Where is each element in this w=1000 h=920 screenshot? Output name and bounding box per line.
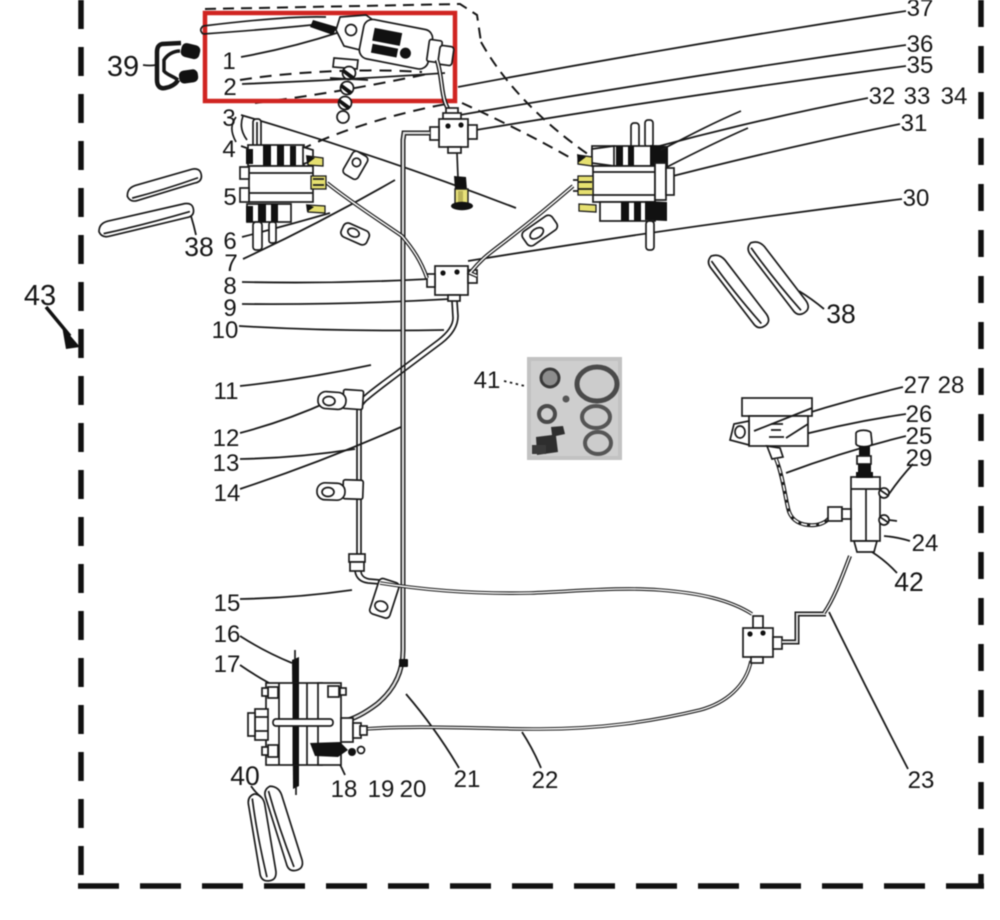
svg-text:19: 19 xyxy=(368,776,395,803)
svg-text:12: 12 xyxy=(213,425,240,452)
svg-text:2: 2 xyxy=(223,74,236,101)
svg-text:40: 40 xyxy=(230,761,259,791)
svg-text:20: 20 xyxy=(400,776,427,803)
svg-text:39: 39 xyxy=(107,51,139,83)
svg-text:31: 31 xyxy=(901,110,928,137)
svg-text:3: 3 xyxy=(222,105,235,132)
svg-text:37: 37 xyxy=(907,0,934,22)
svg-text:11: 11 xyxy=(214,378,239,405)
svg-text:4: 4 xyxy=(222,136,235,163)
svg-text:43: 43 xyxy=(24,280,56,312)
svg-text:1: 1 xyxy=(222,48,235,75)
svg-text:26: 26 xyxy=(906,401,933,428)
svg-text:34: 34 xyxy=(941,83,968,110)
svg-text:18: 18 xyxy=(331,776,358,803)
svg-text:17: 17 xyxy=(214,651,241,678)
svg-text:28: 28 xyxy=(938,372,965,399)
svg-text:22: 22 xyxy=(532,767,559,794)
svg-text:42: 42 xyxy=(894,567,923,597)
svg-text:13: 13 xyxy=(213,450,240,477)
svg-text:38: 38 xyxy=(826,299,855,329)
svg-text:32: 32 xyxy=(869,83,896,110)
svg-text:38: 38 xyxy=(184,232,213,262)
svg-text:14: 14 xyxy=(214,480,241,507)
svg-text:24: 24 xyxy=(912,530,939,557)
svg-text:30: 30 xyxy=(903,185,930,212)
svg-text:16: 16 xyxy=(214,621,241,648)
svg-text:15: 15 xyxy=(214,590,241,617)
svg-text:5: 5 xyxy=(223,184,236,211)
svg-text:27: 27 xyxy=(904,372,931,399)
svg-text:33: 33 xyxy=(904,83,931,110)
svg-text:23: 23 xyxy=(908,767,935,794)
svg-text:36: 36 xyxy=(907,31,934,58)
svg-text:21: 21 xyxy=(454,766,481,793)
svg-text:10: 10 xyxy=(212,317,239,344)
svg-text:41: 41 xyxy=(474,367,501,394)
